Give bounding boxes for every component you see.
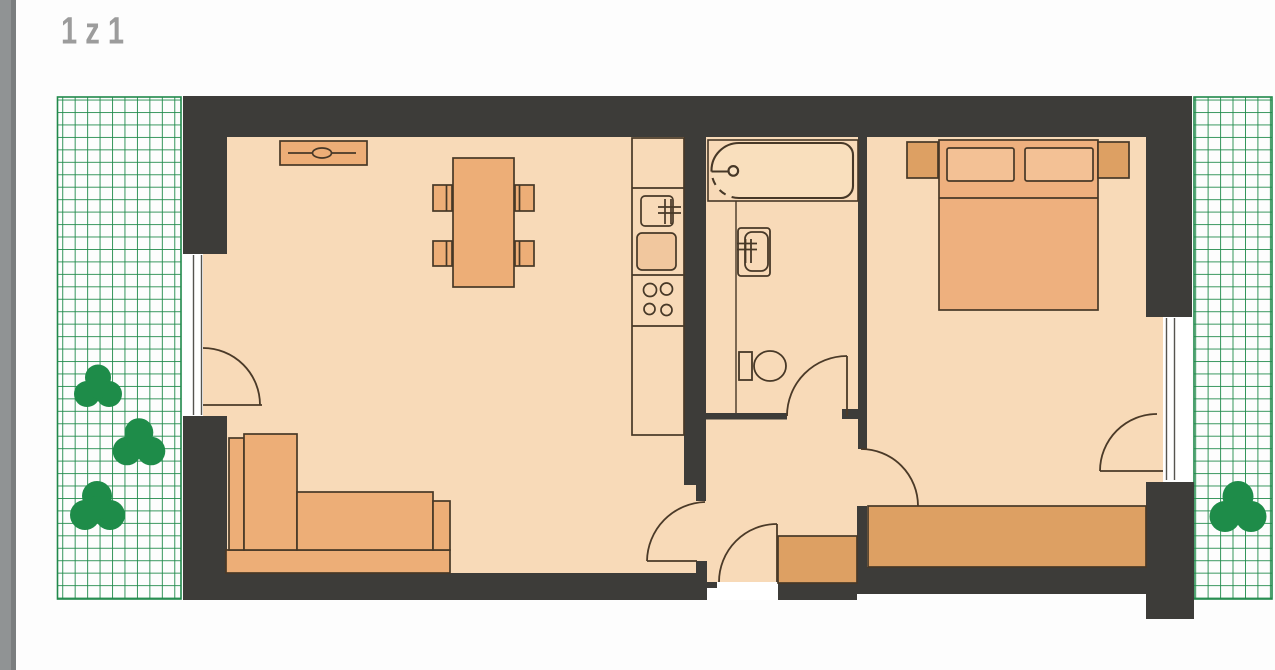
svg-text:1 z 1: 1 z 1	[61, 11, 124, 53]
